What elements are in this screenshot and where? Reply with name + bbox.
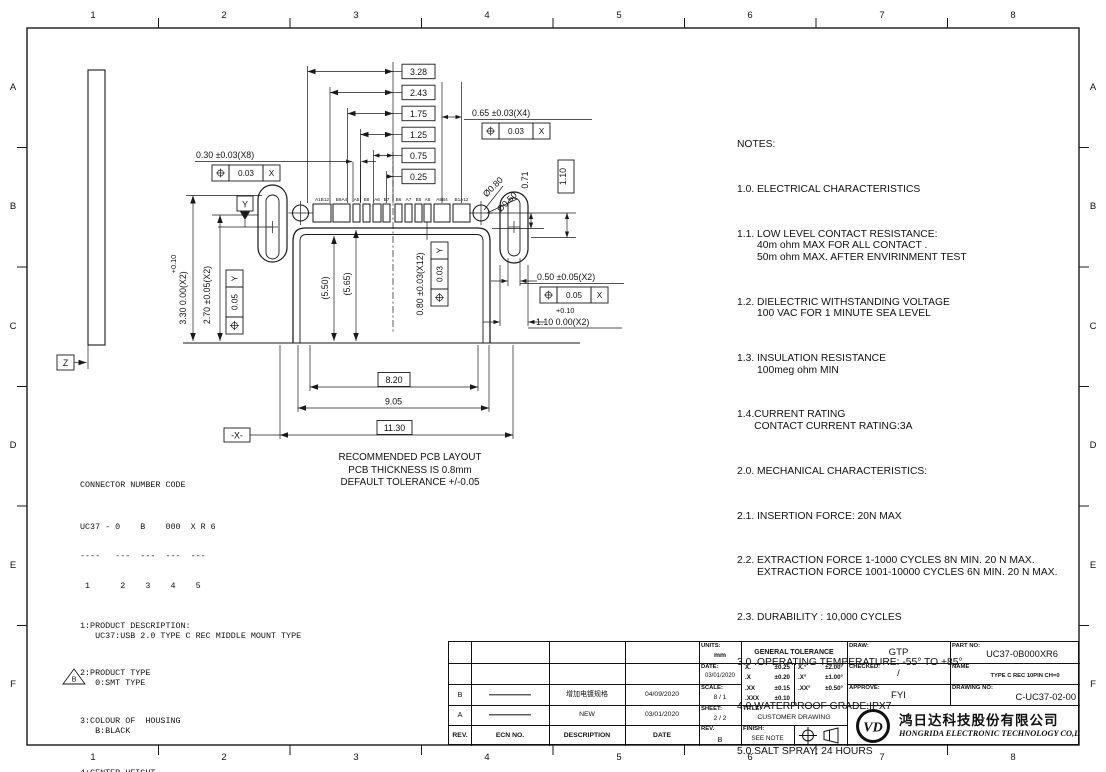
code-title: CONNECTOR NUMBER CODE (80, 481, 301, 491)
tolerance-linear: X.±0.25 .X±0.20 .XX±0.15 .XXX±0.10 (741, 663, 794, 705)
code-section: 2:PRODUCT TYPE 0:SMT TYPE (80, 669, 301, 689)
rev-row-desc: 增加电镀规格 (549, 684, 625, 705)
fcf-030-datum: X (269, 169, 275, 178)
sheet-value: 2 / 2 (699, 715, 741, 722)
fcf-050-value: 0.05 (566, 291, 582, 300)
pin-labels: A1B12 B9A4 A5 B8 A6 B7 B6 A7 B5 A8 A9B4 … (315, 197, 469, 202)
pcb-edge-view (57, 70, 105, 370)
fcf-270-value: 0.05 (231, 294, 240, 310)
tol-value: ±0.15 (775, 684, 790, 694)
name-label: NAME (952, 664, 969, 670)
left-dimensions (186, 196, 272, 342)
svg-text:VD: VD (863, 721, 882, 736)
svg-text:A1B12: A1B12 (315, 197, 329, 202)
units-cell: UNITS: mm (699, 642, 741, 663)
note-item: 2.3. DURABILITY : 10,000 CYCLES (737, 612, 1082, 624)
connector-code-panel: CONNECTOR NUMBER CODE UC37 - 0 B 000 X R… (80, 461, 301, 772)
fcf-050-datum: X (597, 291, 603, 300)
title-block: B 增加电镀规格 04/09/2020 A NEW 03/01/2020 REV… (448, 641, 1079, 745)
company-cell: VD 鸿日达科技股份有限公司 HONGRIDA ELECTRONIC TECHN… (847, 705, 1080, 746)
datum-x-label: -X- (231, 431, 243, 441)
scale-value: 8 / 1 (699, 694, 741, 701)
rev-row-date: 04/09/2020 (625, 684, 699, 705)
projection-symbol-cell (794, 725, 847, 746)
svg-text:3.28: 3.28 (410, 67, 427, 77)
dim-820-label: 8.20 (385, 375, 402, 385)
tol-value: ±1.00° (825, 673, 843, 683)
dim-330-label: 3.30 0.00(X2) (178, 271, 188, 324)
units-value: mm (699, 652, 741, 659)
name-value: TYPE C REC 10PIN CH=0 (950, 673, 1080, 679)
fcf-065-value: 0.03 (508, 127, 524, 136)
finish-value: SEE NOTE (741, 735, 794, 742)
dim-065 (442, 82, 592, 203)
svg-text:A5: A5 (354, 197, 360, 202)
company-name-cn: 鸿日达科技股份有限公司 (899, 709, 1059, 729)
approve-cell: APPROVE: FYI (847, 684, 950, 705)
drawing-no-cell: DRAWING NO: C-UC37-02-00 (950, 684, 1080, 705)
dim-110b-label: 1.10 (558, 168, 568, 185)
plated-holes (289, 201, 494, 225)
datum-y-label: Y (242, 200, 248, 210)
title-value: CUSTOMER DRAWING (741, 714, 847, 721)
svg-text:B8: B8 (364, 197, 370, 202)
revision-triangle-label: B (72, 675, 77, 684)
datum-z-label: Z (63, 358, 69, 368)
tol-label: .X° (798, 673, 806, 683)
note-item: 2.0. MECHANICAL CHARACTERISTICS: (737, 466, 1082, 478)
rev-label: REV. (701, 726, 714, 732)
dim-110-tol: +0.10 (556, 306, 574, 315)
scale-label: SCALE: (701, 685, 723, 691)
position-tolerance-icon (486, 127, 495, 136)
date-value: 03/01/2020 (699, 673, 741, 679)
code-line: UC37 - 0 B 000 X R 6 (80, 523, 301, 533)
rev-row-desc: NEW (549, 705, 625, 725)
position-tolerance-icon (544, 291, 553, 300)
drawing-sheet: 1 2 3 4 5 6 7 8 1 2 3 4 5 6 7 8 A B C D … (0, 0, 1106, 772)
checked-value: / (847, 668, 950, 679)
fcf-080-value: 0.03 (436, 266, 445, 282)
note-item: 1.0. ELECTRICAL CHARACTERISTICS (737, 184, 1082, 196)
fcf-030-value: 0.03 (238, 169, 254, 178)
third-angle-projection-icon (796, 726, 846, 745)
fcf-080-datum: Y (436, 247, 445, 253)
fcf-270-datum: Y (231, 275, 240, 281)
finish-label: FINISH: (743, 726, 764, 732)
rev-row-date: 03/01/2020 (625, 705, 699, 725)
svg-text:1.25: 1.25 (410, 130, 427, 140)
code-section: 3:COLOUR OF HOUSING B:BLACK (80, 717, 301, 737)
code-section: 1:PRODUCT DESCRIPTION: UC37:USB 2.0 TYPE… (80, 622, 301, 642)
svg-text:1.75: 1.75 (410, 109, 427, 119)
svg-text:A7: A7 (406, 197, 412, 202)
rev-row-ecn (471, 705, 549, 725)
tol-value: ±0.50° (825, 684, 843, 694)
hongrida-logo-icon: VD (854, 707, 892, 745)
note-item: 1.1. LOW LEVEL CONTACT RESISTANCE: 40m o… (737, 229, 1082, 264)
dim-330-tol: +0.10 (169, 255, 178, 273)
tol-label: .XXX (745, 694, 759, 704)
drawing-no-label: DRAWING NO: (952, 685, 993, 691)
draw-value: GTP (847, 647, 950, 658)
note-item: 2.2. EXTRACTION FORCE 1-1000 CYCLES 8N M… (737, 555, 1082, 578)
dim-1130-label: 11.30 (384, 423, 405, 433)
code-section: 4:CENTER HEIGHT 000:CH=0mm (80, 769, 301, 772)
note-item: 1.4.CURRENT RATING CONTACT CURRENT RATIN… (737, 409, 1082, 432)
sheet-label: SHEET: (701, 706, 722, 712)
svg-text:0.25: 0.25 (410, 172, 427, 182)
tol-value: ±0.10 (775, 694, 790, 704)
dim-905-label: 9.05 (385, 397, 402, 407)
dim-110-label: 1.10 0.00(X2) (536, 317, 589, 327)
dim-071-label: 0.71 (520, 171, 530, 188)
title-label: TITLE: (743, 706, 761, 712)
dim-065-label: 0.65 ±0.03(X4) (472, 108, 530, 118)
tol-label: .XX° (798, 684, 810, 694)
top-dimension-labels: 3.28 2.43 1.75 1.25 0.75 0.25 (410, 67, 427, 182)
position-tolerance-icon (230, 321, 239, 330)
tol-label: .XX (745, 684, 755, 694)
checked-cell: CHECKED: / (847, 663, 950, 684)
rev-value: B (699, 735, 741, 744)
rev-row-rev: A (449, 705, 471, 725)
approve-value: FYI (847, 690, 950, 701)
note-item: 2.1. INSERTION FORCE: 20N MAX (737, 511, 1082, 523)
notes-title: NOTES: (737, 139, 1082, 151)
dim-030-label: 0.30 ±0.03(X8) (196, 150, 254, 160)
position-tolerance-icon (216, 169, 225, 178)
date-label: DATE: (701, 664, 719, 670)
bottom-dimensions (224, 345, 513, 442)
dia-080-label: Ø0.80 (481, 175, 505, 199)
units-label: UNITS: (701, 643, 721, 649)
rev-header: DESCRIPTION (549, 725, 625, 746)
svg-text:A6: A6 (374, 197, 380, 202)
svg-text:2.43: 2.43 (410, 88, 427, 98)
tol-label: X. (745, 663, 751, 673)
ecn-blank-line (489, 714, 531, 715)
rev-row-ecn (471, 684, 549, 705)
svg-text:0.75: 0.75 (410, 151, 427, 161)
svg-text:B5: B5 (416, 197, 422, 202)
tolerance-header: GENERAL TOLERANCE (741, 642, 847, 663)
drawing-no-value: C-UC37-02-00 (950, 692, 1080, 702)
scale-cell: SCALE: 8 / 1 (699, 684, 741, 705)
rev-cell: REV. B (699, 725, 741, 746)
pcb-layout-note: RECOMMENDED PCB LAYOUT PCB THICKNESS IS … (300, 452, 520, 490)
note-item: 1.3. INSULATION RESISTANCE 100meg ohm MI… (737, 353, 1082, 376)
rev-header: DATE (625, 725, 699, 746)
tol-label: X.° (798, 663, 806, 673)
dim-050-label: 0.50 ±0.05(X2) (537, 272, 595, 282)
draw-cell: DRAW: GTP (847, 642, 950, 663)
name-cell: NAME TYPE C REC 10PIN CH=0 (950, 663, 1080, 684)
sheet-cell: SHEET: 2 / 2 (699, 705, 741, 725)
part-no-value: UC37-0B000XR6 (950, 649, 1080, 659)
tolerance-angular: X.°±2.00° .X°±1.00° .XX°±0.50° (794, 663, 847, 705)
tol-value: ±0.25 (775, 663, 790, 673)
company-name-en: HONGRIDA ELECTRONIC TECHNOLOGY CO,LTD. (899, 729, 1080, 738)
rev-header: ECN NO. (471, 725, 549, 746)
rev-row-rev: B (449, 684, 471, 705)
tol-label: .X (745, 673, 751, 683)
note-item: 1.2. DIELECTRIC WITHSTANDING VOLTAGE 100… (737, 297, 1082, 320)
part-no-cell: PART NO: UC37-0B000XR6 (950, 642, 1080, 663)
dia-050-label: Ø0.50 (495, 190, 519, 214)
rev-header: REV. (449, 725, 471, 746)
pad-array (313, 204, 470, 222)
dim-030 (195, 162, 376, 203)
svg-text:A8: A8 (425, 197, 431, 202)
note-item: 5.0.SALT SPRAY: 24 HOURS (737, 746, 1082, 758)
tol-value: ±0.20 (775, 673, 790, 683)
dim-550-label: (5.50) (320, 276, 330, 299)
dim-270-label: 2.70 ±0.05(X2) (202, 266, 212, 324)
tol-value: ±2.00° (825, 663, 843, 673)
position-tolerance-icon (435, 293, 444, 302)
date-cell: DATE: 03/01/2020 (699, 663, 741, 684)
ecn-blank-line (489, 694, 531, 695)
code-index-line: 1 2 3 4 5 (80, 582, 301, 592)
dim-565-label: (5.65) (342, 272, 352, 295)
finish-cell: FINISH: SEE NOTE (741, 725, 794, 746)
fcf-065-datum: X (539, 127, 545, 136)
svg-text:B9A4: B9A4 (336, 197, 348, 202)
title-cell: TITLE: CUSTOMER DRAWING (741, 705, 847, 725)
svg-text:B6: B6 (396, 197, 402, 202)
code-dash-line: ---- --- --- --- --- (80, 552, 301, 562)
dim-080-label: 0.80 ±0.03(X12) (415, 252, 425, 315)
